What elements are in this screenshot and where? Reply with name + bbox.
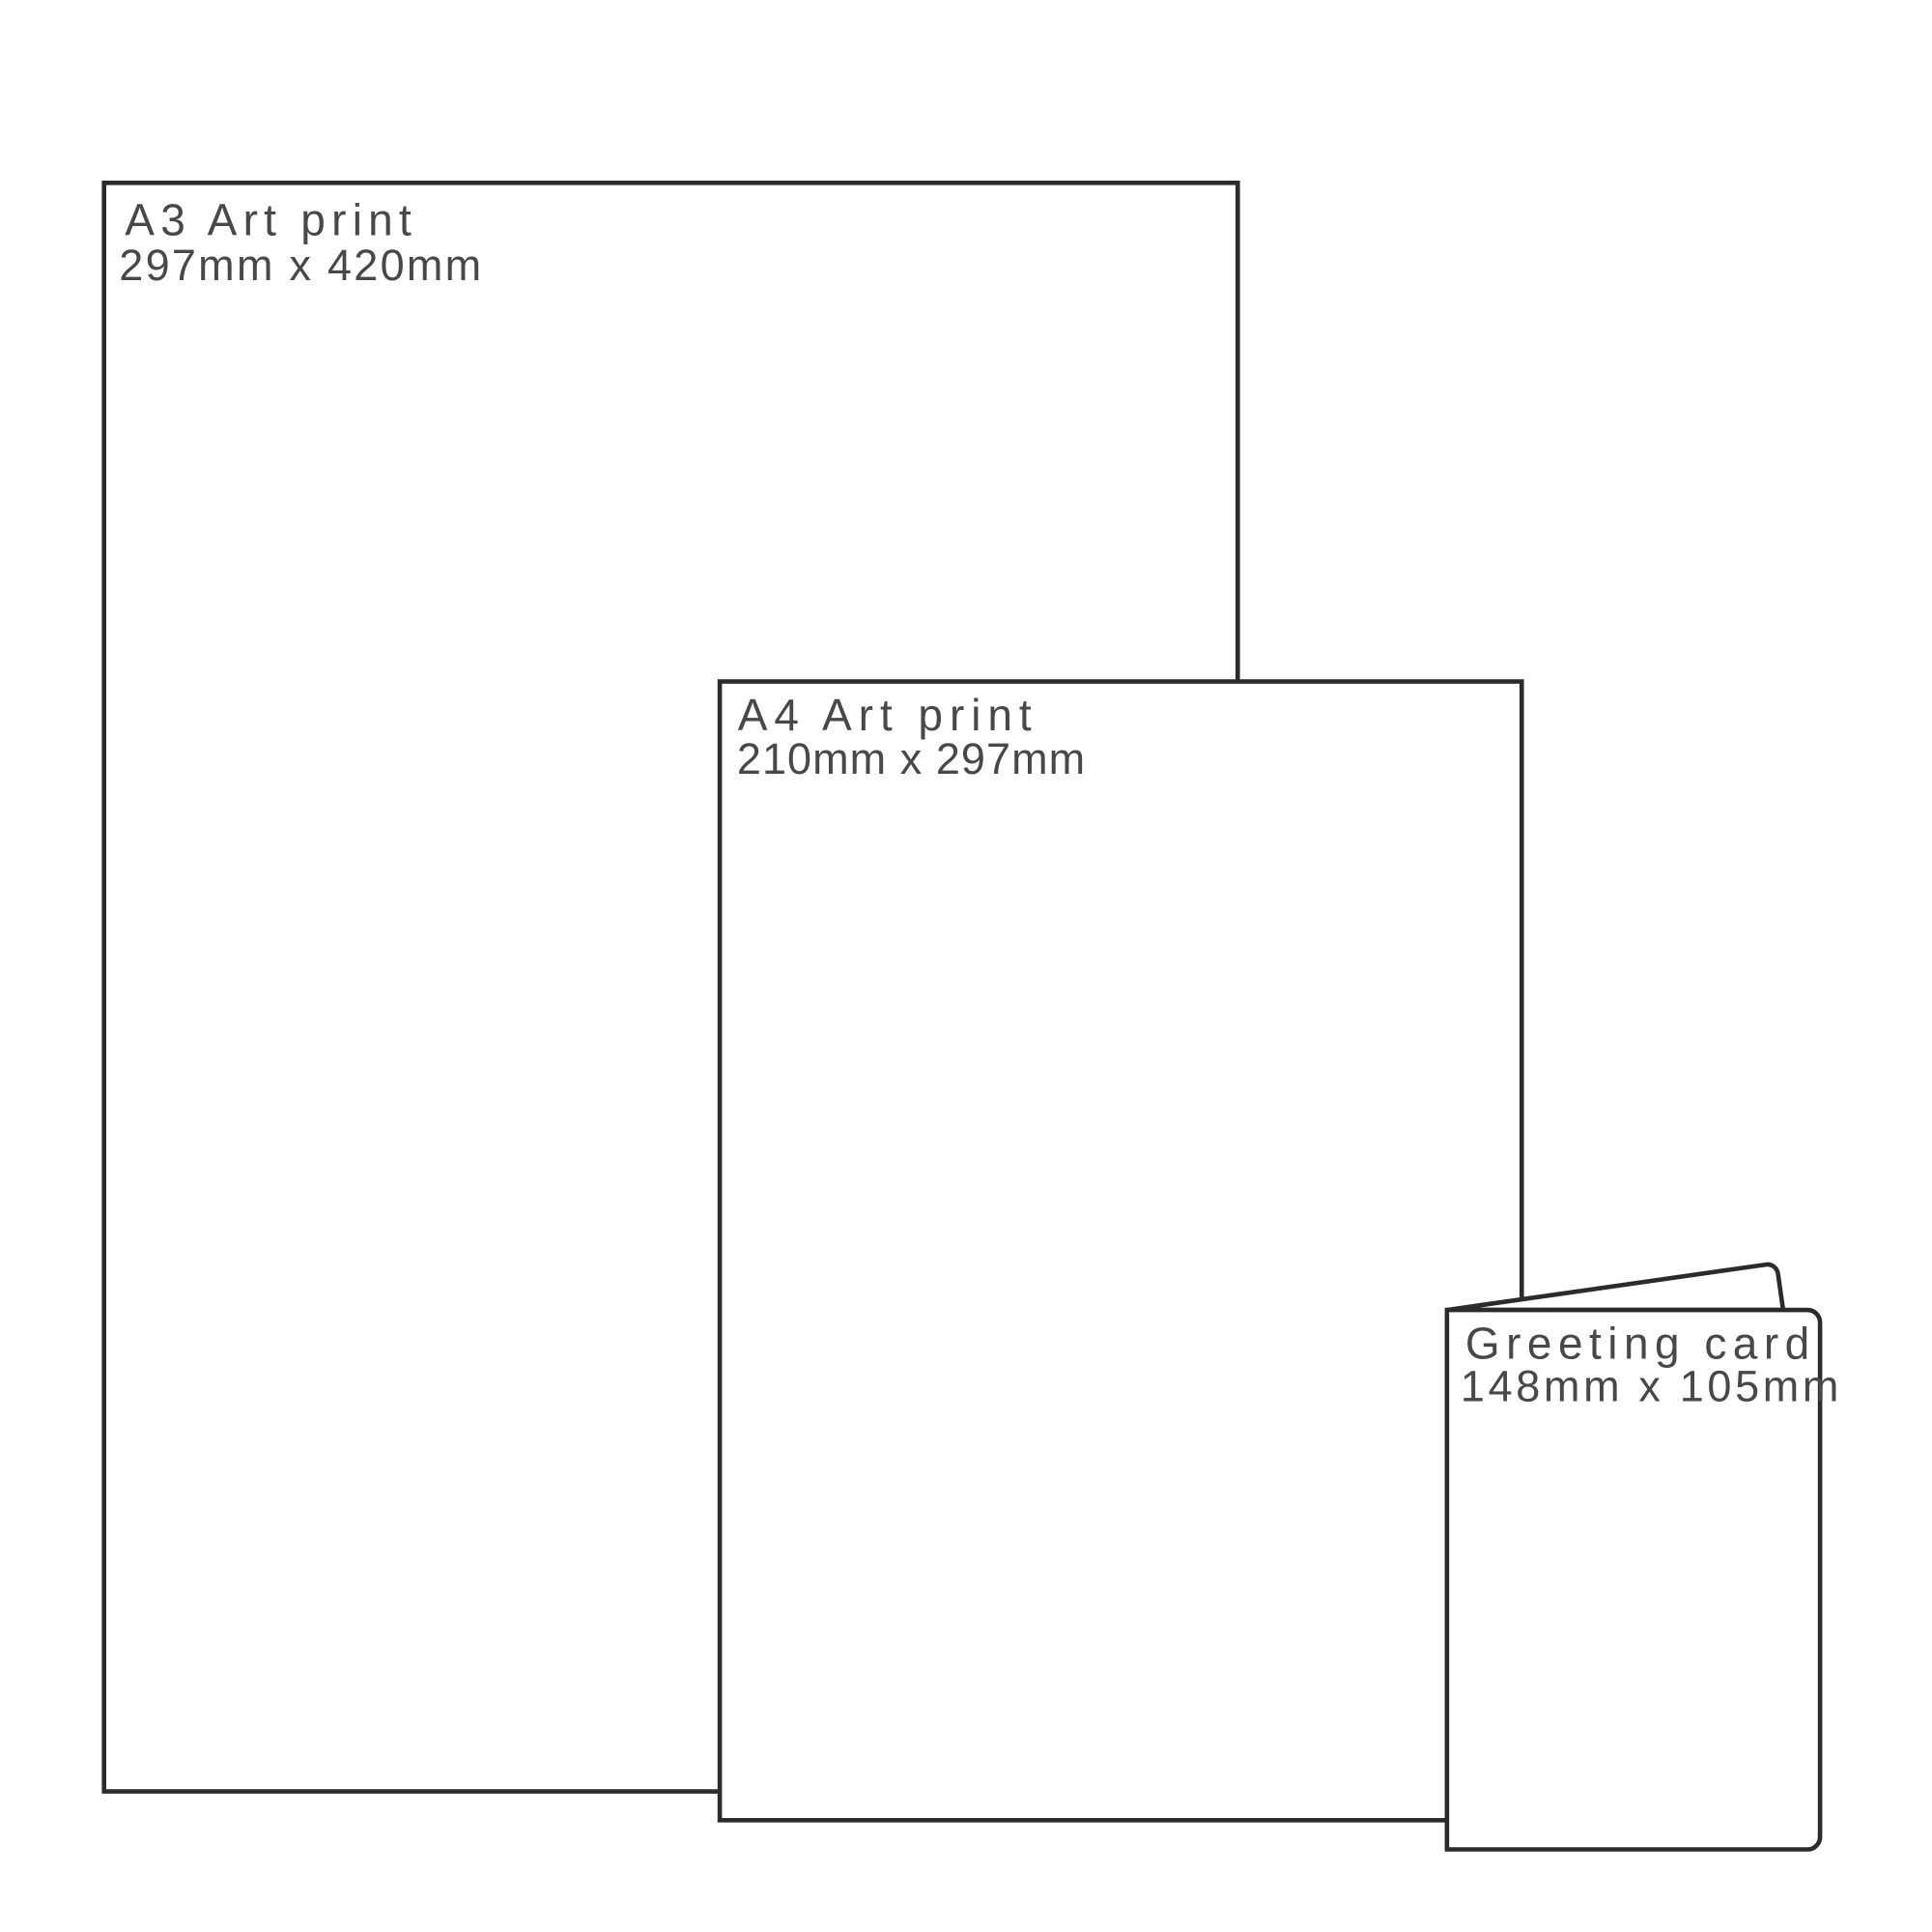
svg-text:148mm x 105mm: 148mm x 105mm [1461,1362,1842,1411]
svg-text:297mm x 420mm: 297mm x 420mm [119,241,483,290]
svg-text:A4 Art print: A4 Art print [738,690,1038,740]
svg-text:210mm x 297mm: 210mm x 297mm [737,734,1086,783]
svg-text:A3 Art print: A3 Art print [125,195,417,245]
